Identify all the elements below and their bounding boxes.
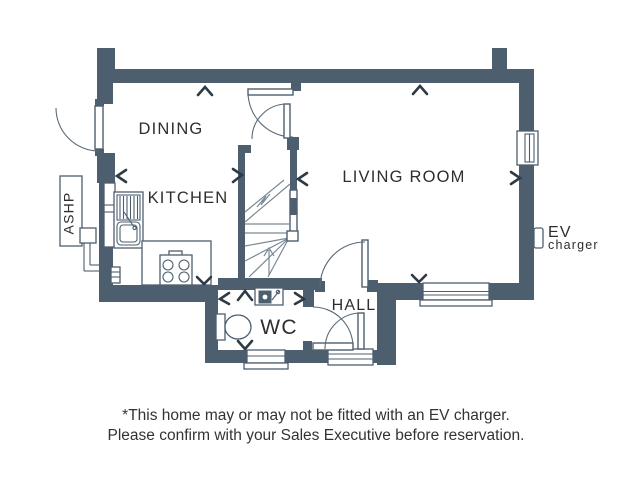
ev-charger-icon	[534, 228, 543, 248]
wall-kitchen-bottom	[99, 285, 218, 302]
sink-icon	[114, 192, 143, 248]
window-wc-sill	[244, 363, 288, 369]
wall-top	[97, 69, 534, 83]
label-dining: DINING	[139, 120, 204, 138]
stair-wall-cap	[238, 145, 251, 153]
door-cap-top	[95, 99, 104, 106]
stair-wall-right	[290, 145, 297, 190]
label-hall: HALL	[332, 297, 377, 314]
caption-line-2: Please confirm with your Sales Executive…	[108, 427, 525, 444]
door-landing-b	[284, 104, 290, 138]
door-dining-external	[95, 106, 103, 149]
door-dining-external-swing	[56, 108, 99, 151]
wall-left-stub	[97, 153, 115, 183]
door-living-room	[362, 240, 368, 287]
chevron-down-wc	[238, 341, 252, 349]
chimney-right	[492, 48, 507, 71]
chevron-left-kitchen	[117, 170, 126, 182]
wall-wc-partition	[303, 288, 314, 307]
label-living-room: LIVING ROOM	[342, 168, 465, 186]
basin-icon	[255, 288, 283, 305]
door-living-room-swing	[320, 242, 365, 287]
door-landing-a	[248, 89, 293, 95]
window-living-south-sill	[420, 300, 492, 306]
wall-right	[519, 69, 534, 300]
chevron-up-living	[413, 86, 427, 94]
window-living-east	[517, 131, 538, 165]
stairs	[245, 180, 298, 277]
label-ev-charger: charger	[548, 238, 599, 252]
chimney-left	[97, 48, 115, 71]
chevron-right-wc	[295, 293, 304, 304]
tall-unit-icon	[104, 183, 115, 247]
door-landing-b-swing	[252, 104, 287, 139]
appliance-icon	[111, 267, 120, 283]
door-front	[358, 313, 364, 349]
label-ashp: ASHP	[61, 192, 77, 235]
wc-door-hinge-block	[303, 341, 312, 351]
toilet-icon	[216, 314, 251, 340]
chevron-up-wc	[238, 291, 252, 300]
chevron-left-living	[298, 173, 307, 185]
stair-newel	[287, 231, 298, 241]
floorplan-page: DINING KITCHEN LIVING ROOM HALL WC ASHP …	[0, 0, 632, 500]
label-kitchen: KITCHEN	[148, 189, 229, 207]
landing-stub-bottom	[287, 137, 299, 150]
chevron-down-living	[412, 275, 426, 282]
ashp-pipe-icon	[80, 228, 100, 271]
disclaimer-caption: *This home may or may not be fitted with…	[108, 407, 525, 444]
door-wc	[313, 343, 353, 350]
front-door-threshold	[328, 349, 373, 365]
floorplan-svg: DINING KITCHEN LIVING ROOM HALL WC ASHP …	[0, 0, 632, 500]
caption-line-1: *This home may or may not be fitted with…	[122, 407, 510, 424]
label-wc: WC	[260, 316, 297, 339]
hob-icon	[142, 241, 211, 285]
chevron-left-wc	[220, 293, 229, 304]
chevron-up-dining	[198, 87, 212, 95]
stair-handrail-post	[291, 198, 297, 215]
chevron-right-living	[511, 172, 520, 184]
